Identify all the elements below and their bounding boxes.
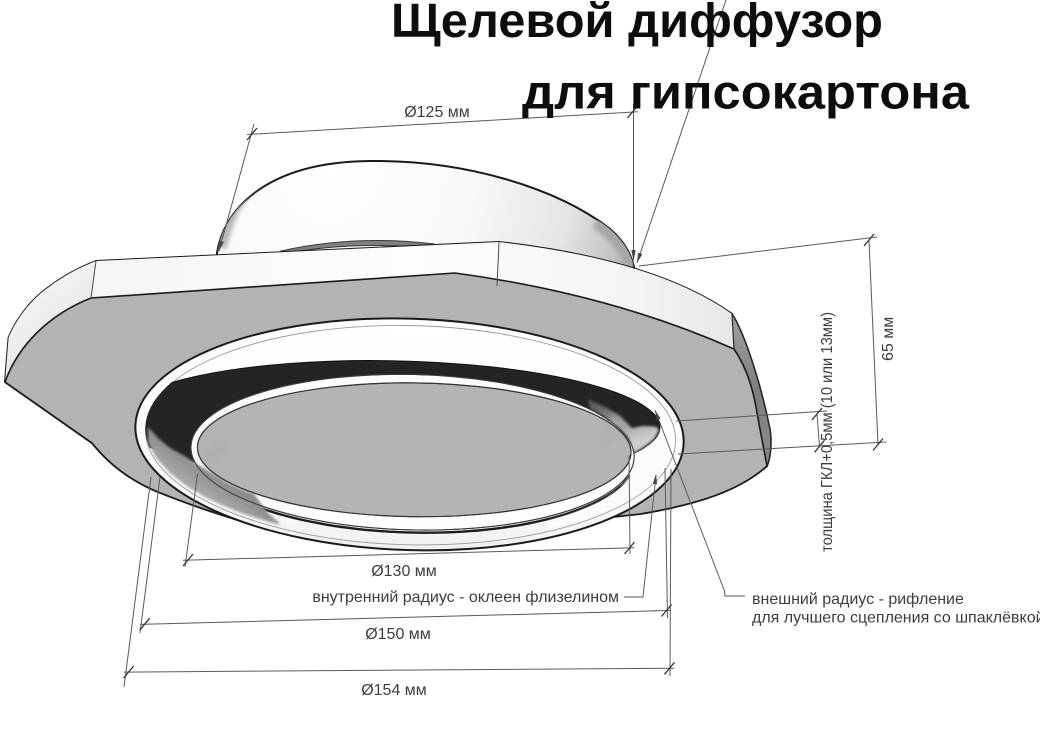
svg-text:Ø125 мм: Ø125 мм	[404, 104, 470, 121]
svg-text:внешний радиус - рифление: внешний радиус - рифление	[752, 591, 964, 608]
svg-text:65 мм: 65 мм	[880, 317, 897, 361]
svg-text:Ø130 мм: Ø130 мм	[371, 563, 437, 580]
svg-text:внутренний радиус - оклеен фли: внутренний радиус - оклеен флизелином	[312, 589, 619, 606]
svg-text:для гипсокартона: для гипсокартона	[522, 67, 969, 120]
svg-text:Ø150 мм: Ø150 мм	[365, 626, 431, 643]
svg-text:Щелевой диффузор: Щелевой диффузор	[391, 0, 883, 48]
svg-text:для лучшего сцепления со шпакл: для лучшего сцепления со шпаклёвкой	[752, 610, 1040, 627]
svg-text:толщина ГКЛ+0,5мм (10 или 13мм: толщина ГКЛ+0,5мм (10 или 13мм)	[819, 312, 836, 552]
svg-text:Ø154 мм: Ø154 мм	[361, 682, 427, 699]
